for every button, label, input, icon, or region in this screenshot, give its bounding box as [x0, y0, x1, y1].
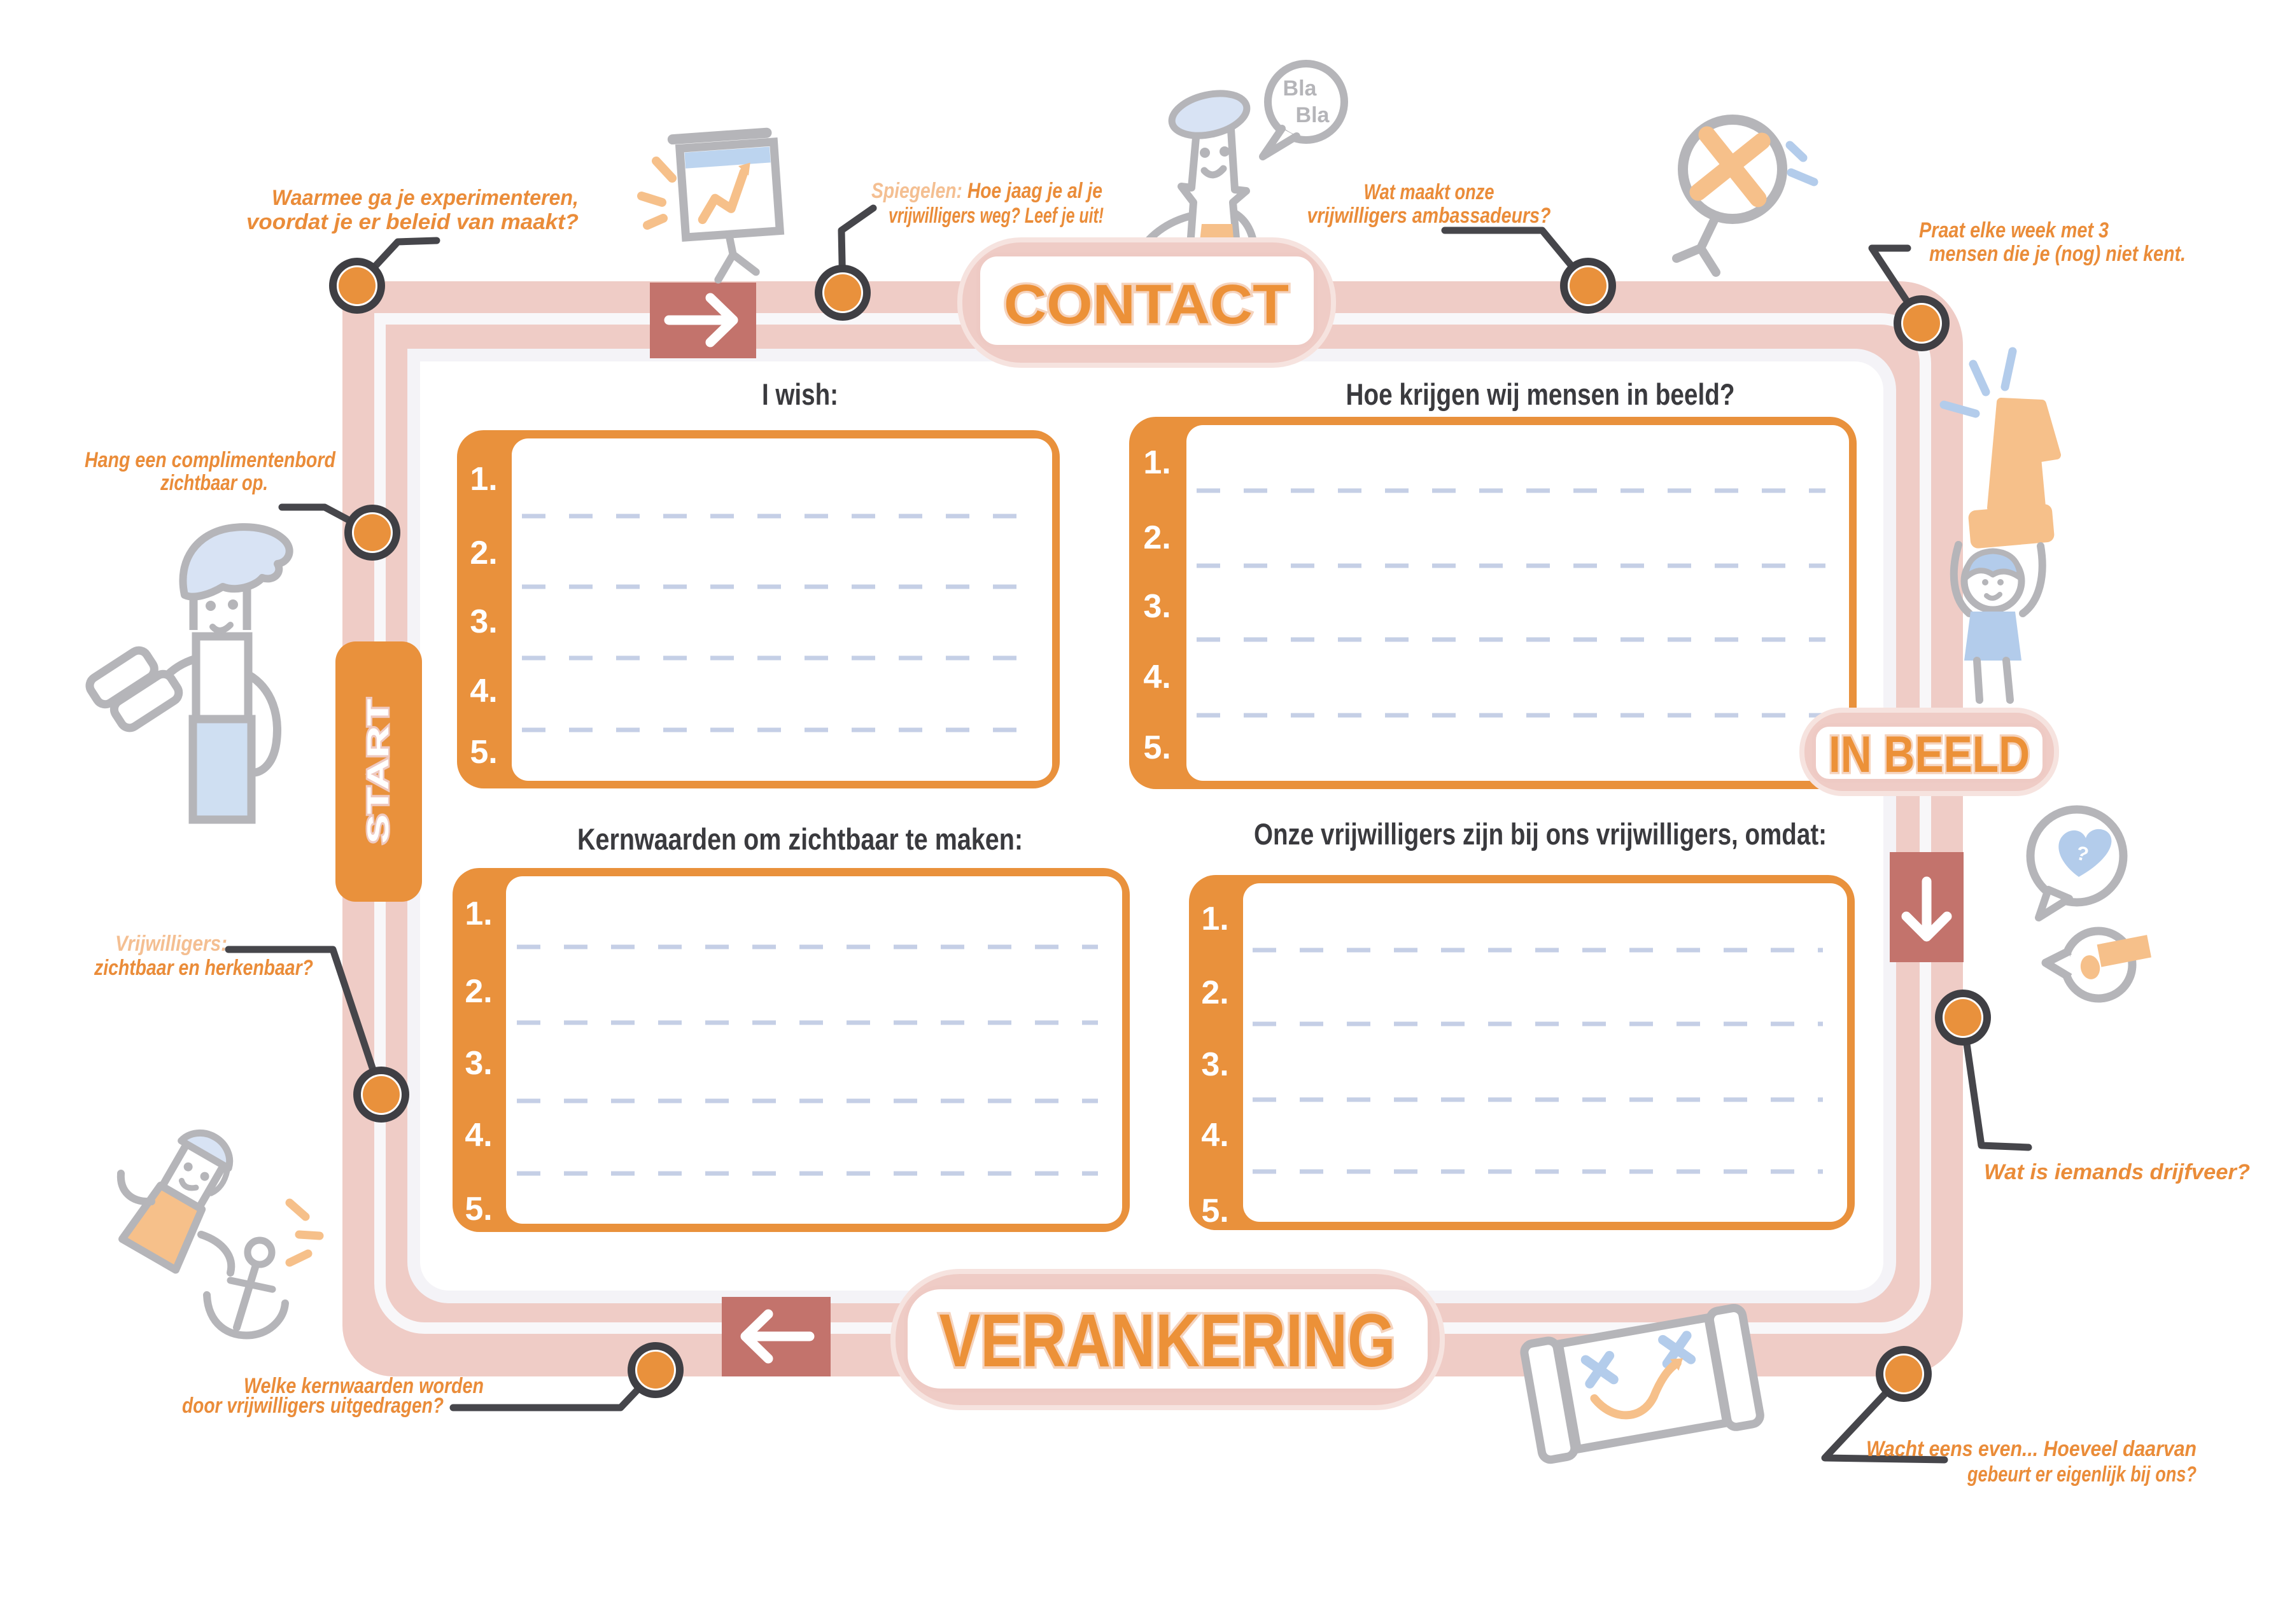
svg-text:Bla: Bla [1283, 76, 1318, 101]
svg-text:1.: 1. [1201, 900, 1228, 937]
svg-text:Kernwaarden om zichtbaar te ma: Kernwaarden om zichtbaar te maken: [577, 822, 1023, 856]
svg-text:START: START [361, 699, 395, 844]
svg-text:5.: 5. [1143, 729, 1171, 766]
svg-text:3.: 3. [1201, 1046, 1228, 1083]
svg-text:Vrijwilligers:: Vrijwilligers: [115, 932, 227, 956]
svg-text:IN BEELD: IN BEELD [1829, 726, 2030, 783]
svg-text:Wat maakt onze: Wat maakt onze [1364, 180, 1494, 204]
svg-text:Hoe krijgen wij mensen in beel: Hoe krijgen wij mensen in beeld? [1346, 377, 1735, 411]
svg-text:Praat elke week met 3: Praat elke week met 3 [1919, 218, 2109, 242]
svg-text:vrijwilligers weg? Leef je uit: vrijwilligers weg? Leef je uit! [889, 204, 1104, 228]
svg-text:voordat je er beleid van maakt: voordat je er beleid van maakt? [246, 210, 579, 234]
svg-text:mensen die je (nog) niet kent.: mensen die je (nog) niet kent. [1929, 242, 2186, 266]
svg-text:3.: 3. [1143, 588, 1171, 625]
svg-text:4.: 4. [1201, 1117, 1228, 1154]
svg-text:Wacht eens even... Hoeveel daa: Wacht eens even... Hoeveel daarvan [1866, 1437, 2197, 1461]
svg-text:Wat is iemands drijfveer?: Wat is iemands drijfveer? [1984, 1160, 2250, 1184]
svg-text:5.: 5. [470, 734, 497, 771]
svg-text:2.: 2. [1143, 519, 1171, 556]
svg-text:Hang een complimentenbord: Hang een complimentenbord [85, 448, 336, 472]
svg-text:gebeurt er eigenlijk bij ons?: gebeurt er eigenlijk bij ons? [1967, 1462, 2197, 1487]
svg-text:CONTACT: CONTACT [1004, 274, 1289, 335]
svg-text:3.: 3. [470, 603, 497, 640]
svg-text:door vrijwilligers uitgedragen: door vrijwilligers uitgedragen? [182, 1394, 444, 1418]
svg-text:1.: 1. [470, 461, 497, 498]
svg-text:4.: 4. [465, 1117, 492, 1154]
svg-text:VERANKERING: VERANKERING [939, 1299, 1396, 1383]
svg-text:2.: 2. [470, 535, 497, 571]
svg-text:2.: 2. [1201, 974, 1228, 1011]
svg-text:1.: 1. [465, 895, 492, 932]
svg-text:5.: 5. [465, 1191, 492, 1228]
svg-text:5.: 5. [1201, 1193, 1228, 1229]
svg-text:1.: 1. [1143, 444, 1171, 481]
svg-text:Spiegelen: Hoe jaag je al je: Spiegelen: Hoe jaag je al je [871, 179, 1102, 203]
svg-text:zichtbaar op.: zichtbaar op. [160, 471, 268, 495]
svg-text:zichtbaar en herkenbaar?: zichtbaar en herkenbaar? [94, 956, 313, 980]
svg-text:Bla: Bla [1296, 103, 1330, 127]
svg-text:Onze vrijwilligers zijn bij on: Onze vrijwilligers zijn bij ons vrijwill… [1254, 817, 1827, 851]
svg-text:4.: 4. [470, 673, 497, 710]
svg-text:Waarmee ga je experimenteren,: Waarmee ga je experimenteren, [272, 186, 579, 210]
svg-text:2.: 2. [465, 973, 492, 1010]
svg-text:I wish:: I wish: [762, 377, 838, 411]
svg-text:4.: 4. [1143, 659, 1171, 696]
svg-text:3.: 3. [465, 1045, 492, 1082]
svg-text:vrijwilligers ambassadeurs?: vrijwilligers ambassadeurs? [1307, 204, 1551, 228]
